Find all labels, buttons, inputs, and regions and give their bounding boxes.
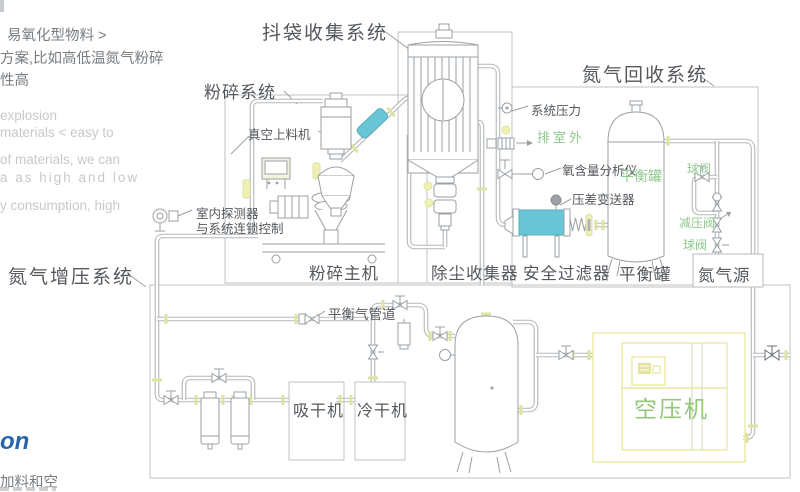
note-cn-2: 方案,比如高低温氮气粉碎 <box>0 47 164 68</box>
oxygen-analyzer-icon <box>498 160 544 180</box>
note-en-3: of materials, we can <box>0 152 120 167</box>
cold-dryer-box <box>355 382 405 460</box>
label-dust-collector: 除尘收集器 <box>431 260 519 284</box>
label-safety-filter: 安全过滤器 <box>523 260 611 284</box>
clipped-char-fragment <box>0 0 4 12</box>
compressor-display-icon <box>638 363 651 374</box>
note-en-5: y consumption, high <box>0 198 120 213</box>
note-en-2: materials < easy to <box>0 125 114 140</box>
suction-dryer-box <box>289 382 344 460</box>
label-crusher-main: 粉碎主机 <box>309 260 379 284</box>
label-ball-valve-2: 球阀 <box>683 236 707 253</box>
cyan-pipe-section <box>355 107 389 140</box>
note-en-4: a as high and low <box>0 170 139 185</box>
label-vent-outdoor: 排室外 <box>537 127 585 146</box>
label-n2-source: 氮气源 <box>698 262 751 286</box>
dust-collector-vessel <box>408 24 478 230</box>
section-n2-boost: 氮气增压系统 <box>8 262 134 289</box>
label-ball-valve-1: 球阀 <box>687 160 711 177</box>
section-n2-recovery: 氮气回收系统 <box>582 60 708 87</box>
dp-gauge-icon <box>551 195 561 205</box>
label-balance-gas-pipe: 平衡气管道 <box>328 303 396 323</box>
note-en-1: explosion <box>0 108 57 123</box>
label-air-compressor: 空压机 <box>634 390 709 424</box>
label-cold-dryer: 冷干机 <box>357 397 408 421</box>
bellows-icon <box>570 218 587 231</box>
diagram-page: { "colors": { "dark":"#54585c","gray":"#… <box>0 0 800 491</box>
label-dp-transmitter: 压差变送器 <box>572 189 635 208</box>
label-detector-2: 与系统连锁控制 <box>196 218 284 237</box>
label-vacuum-feeder: 真空上料机 <box>248 124 311 143</box>
room-detector-icon <box>153 209 178 231</box>
note-cn-1: 易氧化型物料 > <box>7 24 107 45</box>
note-blue-fragment: on <box>0 428 29 456</box>
label-reducing-valve: 减压阀 <box>679 214 715 231</box>
label-balance-tank-tag: 平衡罐 <box>620 166 662 186</box>
section-bag-shake: 抖袋收集系统 <box>262 18 388 45</box>
dryer-boxes <box>289 382 405 460</box>
note-cn-3: 性高 <box>0 69 29 90</box>
section-crushing: 粉碎系统 <box>204 78 276 103</box>
clipped-text-fragment <box>0 487 56 491</box>
vent-muffler-icon <box>487 138 533 149</box>
label-system-pressure: 系统压力 <box>531 100 581 119</box>
control-panel <box>262 158 290 189</box>
label-suction-dryer: 吸干机 <box>293 397 344 421</box>
label-balance-tank: 平衡罐 <box>619 261 672 285</box>
